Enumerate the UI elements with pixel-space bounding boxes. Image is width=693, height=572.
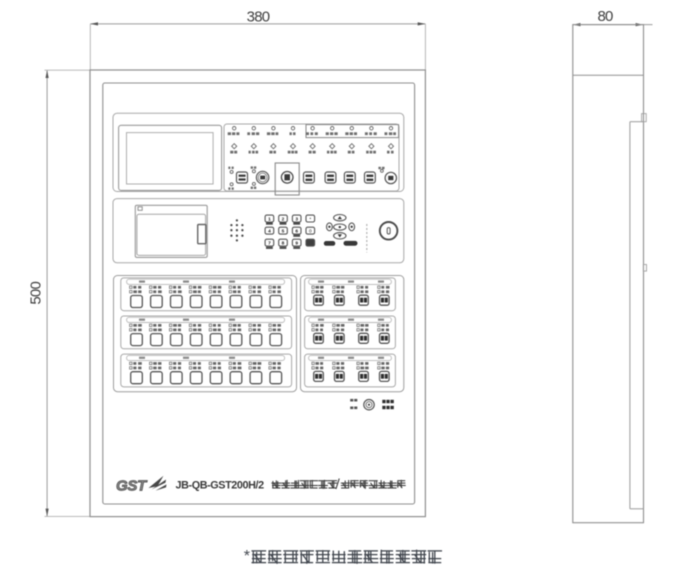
svg-text:80: 80 <box>597 8 613 25</box>
svg-text:*: * <box>244 548 250 565</box>
svg-text:500: 500 <box>28 282 45 305</box>
svg-text:9: 9 <box>295 241 298 247</box>
svg-text:380: 380 <box>247 9 270 26</box>
svg-text:2: 2 <box>282 216 285 222</box>
svg-text:*: * <box>309 216 311 222</box>
svg-text:1: 1 <box>268 216 271 222</box>
svg-text:3: 3 <box>295 216 298 222</box>
svg-text:GST: GST <box>116 477 148 494</box>
svg-text:0: 0 <box>309 229 312 235</box>
svg-text:8: 8 <box>282 241 285 247</box>
svg-text:JB-QB-GST200H/2: JB-QB-GST200H/2 <box>176 480 265 492</box>
svg-text:6: 6 <box>295 228 298 234</box>
svg-text:4: 4 <box>268 228 271 234</box>
svg-text:5: 5 <box>282 228 285 234</box>
svg-text:7: 7 <box>268 241 271 247</box>
